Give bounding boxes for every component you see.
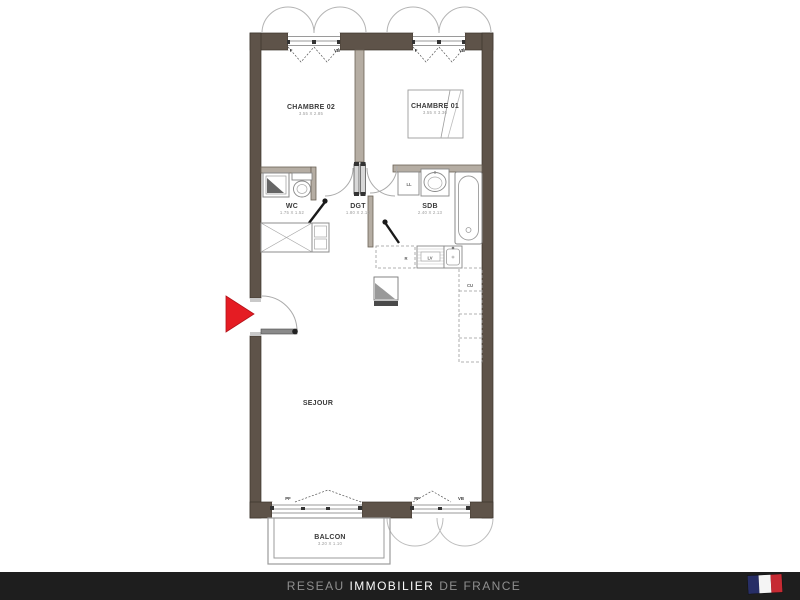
room-label-balcon: BALCON xyxy=(314,534,345,541)
window-label-vb: VB xyxy=(459,48,465,53)
room-dims-balcon: 3.20 X 1.10 xyxy=(318,541,343,546)
floor-plan-page: F VB F VB xyxy=(0,0,800,600)
room-dims-sdb: 2.40 X 2.13 xyxy=(418,210,443,215)
bathtub-icon xyxy=(455,172,482,244)
cabinet-icon xyxy=(312,223,329,252)
french-flag-icon xyxy=(748,574,783,594)
window-label-f: F xyxy=(415,48,418,53)
sink-icon xyxy=(444,246,462,268)
window-bottom-right: PF VB xyxy=(387,491,493,546)
door-swing-chambre01 xyxy=(367,168,395,196)
fixture-label-fridge: R xyxy=(404,256,407,261)
room-dims-chambre01: 3.55 X 3.30 xyxy=(423,110,448,115)
window-label-f: F xyxy=(290,48,293,53)
room-dims-wc: 1.75 X 1.52 xyxy=(280,210,305,215)
door-swing-chambre02 xyxy=(325,168,353,196)
entrance-door xyxy=(261,296,298,334)
brand-suffix: DE FRANCE xyxy=(439,579,521,593)
window-label-vb: VB xyxy=(334,48,340,53)
entrance-jamb-caps xyxy=(250,298,261,336)
room-dims-chambre02: 3.55 X 2.85 xyxy=(299,111,324,116)
fixture-label-washing-machine: LL xyxy=(406,182,412,187)
window-label-pf: PF xyxy=(414,496,420,501)
washbasin-icon xyxy=(263,173,289,197)
room-label-sdb: SDB xyxy=(422,203,438,210)
room-label-chambre01: CHAMBRE 01 xyxy=(411,103,459,110)
brand-prefix: RESEAU xyxy=(287,579,345,593)
room-label-sejour: SEJOUR xyxy=(303,400,333,407)
room-label-chambre02: CHAMBRE 02 xyxy=(287,104,335,111)
room-label-wc: WC xyxy=(286,203,298,210)
fixture-label-kitchen-column: CU xyxy=(467,283,473,288)
fridge-outline xyxy=(376,246,415,268)
footer-bar: RESEAUIMMOBILIERDE FRANCE xyxy=(0,572,800,600)
door-pointer-sejour xyxy=(382,219,399,243)
window-label-vb: VB xyxy=(458,496,464,501)
room-label-dgt: DGT xyxy=(350,203,366,210)
oven-icon xyxy=(374,277,398,306)
partition-walls xyxy=(261,50,482,247)
fixture-label-dishwasher: LV xyxy=(427,256,432,261)
closet-icon xyxy=(261,223,312,252)
room-dims-dgt: 1.80 X 2.13 xyxy=(346,210,371,215)
sdb-washbasin-icon xyxy=(421,169,449,196)
window-bottom-left: PF xyxy=(270,490,362,518)
toilet-icon xyxy=(292,173,312,197)
brand-main: IMMOBILIER xyxy=(350,579,435,593)
door-pointer-wc xyxy=(309,198,328,223)
radiator-icon xyxy=(354,162,366,196)
brand-text: RESEAUIMMOBILIERDE FRANCE xyxy=(287,579,521,593)
window-label-pf: PF xyxy=(285,496,291,501)
floor-plan: F VB F VB xyxy=(0,0,800,600)
entrance-arrow-icon xyxy=(226,296,254,332)
